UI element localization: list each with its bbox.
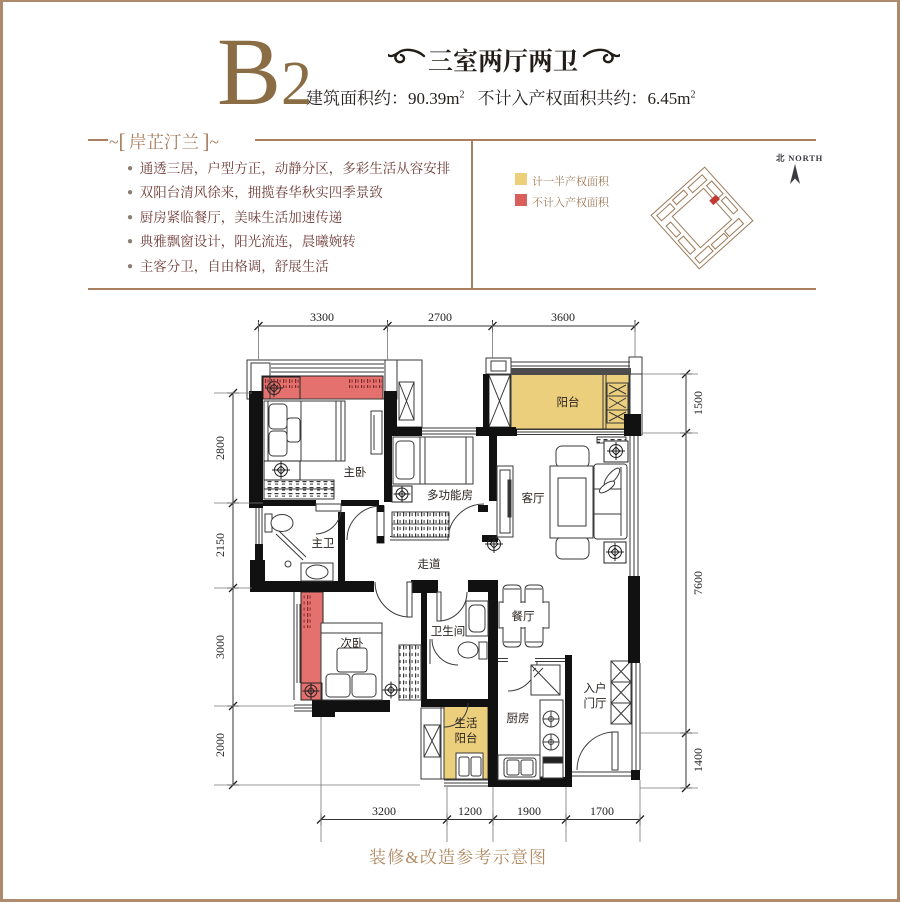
svg-text:门厅: 门厅 [584, 696, 607, 710]
svg-text:多功能房: 多功能房 [427, 488, 473, 502]
svg-text:阳台: 阳台 [455, 731, 478, 745]
svg-text:2700: 2700 [428, 310, 452, 324]
svg-text:1900: 1900 [517, 804, 541, 818]
svg-text:1400: 1400 [691, 748, 705, 772]
svg-text:3000: 3000 [213, 635, 227, 659]
svg-text:1200: 1200 [458, 804, 482, 818]
svg-text:3300: 3300 [310, 310, 334, 324]
svg-text:客厅: 客厅 [522, 491, 545, 505]
svg-text:1700: 1700 [590, 804, 614, 818]
svg-text:阳台: 阳台 [557, 395, 580, 409]
svg-text:3200: 3200 [372, 804, 396, 818]
svg-text:次卧: 次卧 [341, 636, 364, 650]
svg-text:生活: 生活 [455, 716, 478, 730]
svg-text:2000: 2000 [213, 733, 227, 757]
svg-text:1500: 1500 [691, 391, 705, 415]
svg-text:餐厅: 餐厅 [512, 609, 535, 623]
svg-text:2150: 2150 [213, 533, 227, 557]
svg-text:北 NORTH: 北 NORTH [776, 153, 823, 163]
svg-text:厨房: 厨房 [507, 712, 530, 725]
svg-text:卫生间: 卫生间 [431, 624, 466, 638]
svg-text:主卫: 主卫 [312, 537, 335, 550]
svg-text:主卧: 主卧 [344, 466, 367, 479]
svg-text:7600: 7600 [691, 571, 705, 595]
svg-text:入户: 入户 [584, 681, 607, 695]
svg-text:2800: 2800 [213, 436, 227, 460]
svg-text:3600: 3600 [551, 310, 575, 324]
svg-text:走道: 走道 [418, 557, 441, 571]
